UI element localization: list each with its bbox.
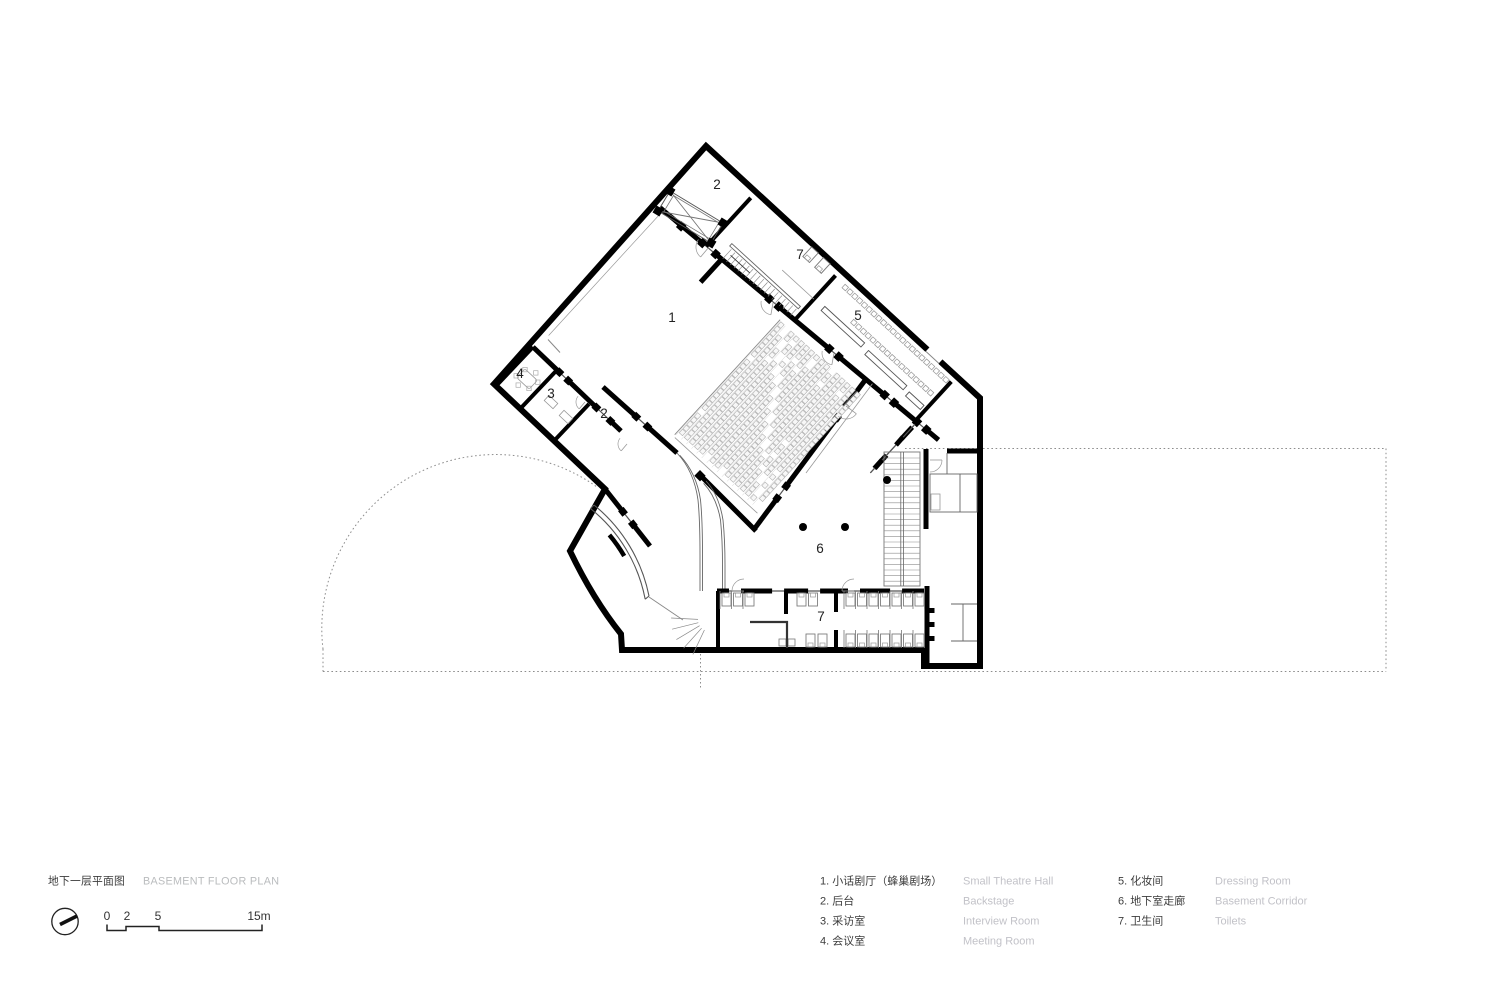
svg-text:2: 2 (124, 909, 131, 923)
svg-text:5: 5 (155, 909, 162, 923)
svg-text:2. 后台: 2. 后台 (820, 894, 854, 908)
svg-text:5: 5 (854, 308, 862, 323)
svg-text:3. 采访室: 3. 采访室 (820, 914, 865, 928)
svg-text:7: 7 (796, 247, 804, 262)
svg-text:5. 化妆间: 5. 化妆间 (1118, 874, 1163, 888)
svg-text:7. 卫生间: 7. 卫生间 (1118, 914, 1163, 928)
svg-text:1. 小话剧厅（蜂巢剧场）: 1. 小话剧厅（蜂巢剧场） (820, 874, 942, 888)
svg-text:6: 6 (816, 541, 824, 556)
svg-text:15m: 15m (247, 909, 270, 923)
svg-text:Interview Room: Interview Room (963, 916, 1039, 928)
svg-text:BASEMENT FLOOR PLAN: BASEMENT FLOOR PLAN (143, 876, 279, 888)
svg-text:2: 2 (713, 177, 721, 192)
svg-text:2: 2 (600, 406, 608, 421)
svg-text:1: 1 (668, 310, 676, 325)
svg-text:地下一层平面图: 地下一层平面图 (48, 875, 125, 888)
svg-text:Toilets: Toilets (1215, 916, 1247, 928)
svg-text:7: 7 (817, 609, 825, 624)
svg-text:4: 4 (516, 366, 524, 381)
svg-text:6. 地下室走廊: 6. 地下室走廊 (1118, 894, 1185, 908)
svg-text:0: 0 (104, 909, 111, 923)
svg-text:Meeting Room: Meeting Room (963, 936, 1035, 948)
svg-text:3: 3 (547, 386, 555, 401)
svg-text:Small Theatre Hall: Small Theatre Hall (963, 876, 1053, 888)
svg-text:Backstage: Backstage (963, 896, 1014, 908)
svg-text:Dressing Room: Dressing Room (1215, 876, 1291, 888)
svg-text:Basement Corridor: Basement Corridor (1215, 896, 1308, 908)
svg-text:4. 会议室: 4. 会议室 (820, 934, 865, 948)
